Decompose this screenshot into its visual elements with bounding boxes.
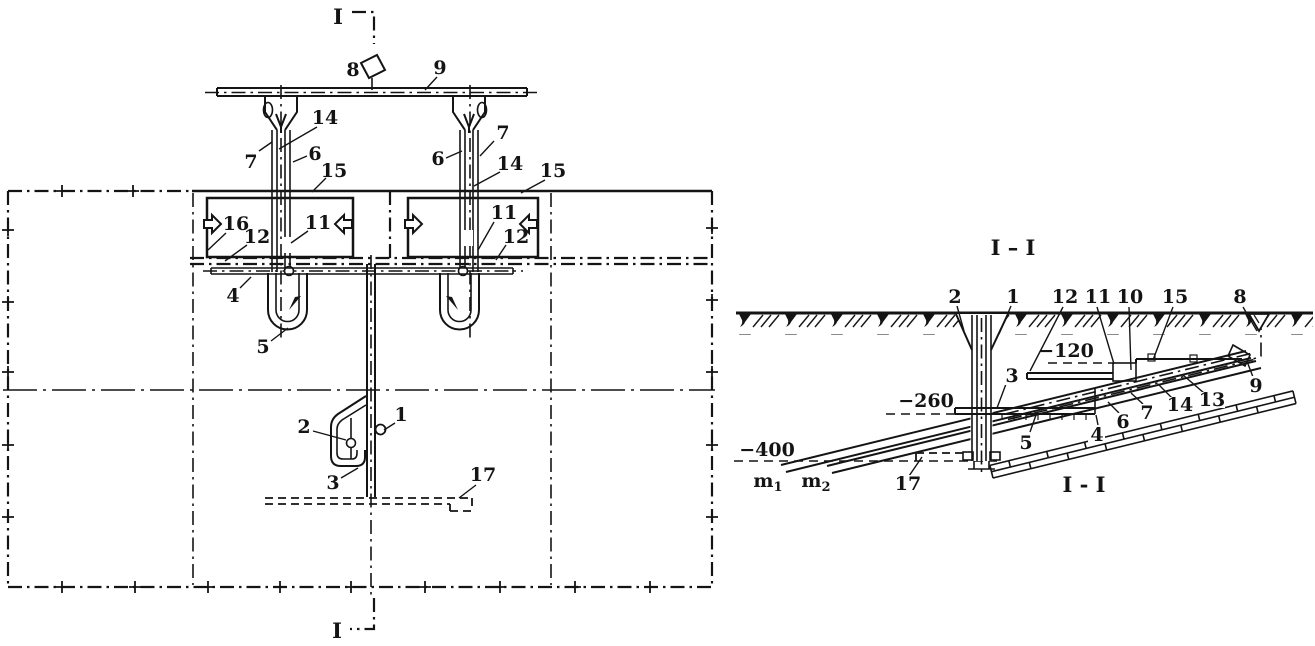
callout-7-plan: 7 — [496, 122, 509, 144]
seam-labels: m1 m2 — [753, 470, 830, 495]
callout-8-plan: 8 — [346, 59, 359, 81]
callout-2-section: 2 — [948, 286, 961, 308]
elevation-120: −120 — [1038, 340, 1094, 362]
loop-road-right — [440, 273, 479, 330]
section-caption: I - I — [1063, 472, 1106, 497]
skip-cage-right — [464, 230, 473, 246]
callout-15-plan: 15 — [540, 160, 566, 182]
plan-callouts: 8 9 14 7 6 15 6 7 14 15 16 12 11 11 12 4… — [223, 57, 566, 494]
door-arrow-icon — [335, 215, 352, 233]
section-marker-top: I — [333, 4, 374, 44]
callout-15-section: 15 — [1162, 286, 1188, 308]
technical-drawing-page: I I — [0, 0, 1315, 646]
callout-9-plan: 9 — [433, 57, 446, 79]
central-roadway — [367, 264, 386, 497]
callout-8-section: 8 — [1233, 286, 1246, 308]
ground-surface — [736, 313, 1313, 335]
plan-leaders — [208, 77, 545, 498]
callout-12-plan: 12 — [244, 226, 270, 248]
callout-4-plan: 4 — [226, 285, 239, 307]
callout-17-section: 17 — [895, 473, 921, 495]
callout-12-plan: 12 — [503, 226, 529, 248]
seam-label-m1: m1 — [753, 470, 782, 495]
elevation-400: −400 — [739, 439, 795, 461]
main-roadway-band — [190, 258, 712, 264]
loop-road-left — [268, 273, 307, 330]
callout-6-section: 6 — [1116, 411, 1129, 433]
callout-7-section: 7 — [1140, 402, 1153, 424]
section-marker-bottom: I — [332, 598, 374, 643]
callout-1-section: 1 — [1006, 286, 1019, 308]
callout-3-section: 3 — [1005, 365, 1018, 387]
callout-15-plan: 15 — [321, 160, 347, 182]
sump-dashed-section — [916, 453, 968, 461]
seam-label-m2: m2 — [801, 470, 830, 495]
callout-2-plan: 2 — [297, 416, 310, 438]
callout-6-plan: 6 — [308, 143, 321, 165]
sump-dashed-plan — [265, 498, 474, 511]
borehole-2 — [347, 439, 356, 448]
callout-10-section: 10 — [1117, 286, 1143, 308]
callout-4-section: 4 — [1090, 424, 1103, 446]
callout-9-section: 9 — [1249, 375, 1262, 397]
callout-5-section: 5 — [1019, 432, 1032, 454]
section-view: I – I — [734, 235, 1313, 497]
callout-14-plan: 14 — [497, 153, 523, 175]
section-letter-bottom: I — [332, 618, 342, 643]
fan-symbol-plan — [361, 55, 385, 90]
callout-13-section: 13 — [1199, 389, 1225, 411]
elevation-260: −260 — [898, 390, 954, 412]
mine-development-drawing: I I — [0, 0, 1315, 646]
callout-14-plan: 14 — [312, 107, 338, 129]
boundary-cross-marks — [2, 185, 718, 593]
callout-5-plan: 5 — [256, 336, 269, 358]
callout-3-plan: 3 — [326, 472, 339, 494]
callout-14-section: 14 — [1167, 394, 1193, 416]
callout-1-plan: 1 — [394, 404, 407, 426]
callout-7-plan: 7 — [244, 151, 257, 173]
callout-17-plan: 17 — [470, 464, 496, 486]
callout-12-section: 12 — [1052, 286, 1078, 308]
callout-11-plan: 11 — [305, 212, 331, 234]
ground-hatching — [736, 315, 1313, 335]
callout-11-section: 11 — [1085, 286, 1111, 308]
callout-11-plan: 11 — [491, 202, 517, 224]
plan-view: I I — [2, 4, 718, 643]
plan-centerlines — [3, 85, 715, 596]
turning-loop — [331, 396, 366, 466]
section-title: I – I — [991, 235, 1036, 260]
skip-cage-left — [284, 237, 293, 253]
field-boundary — [2, 185, 718, 593]
callout-6-plan: 6 — [431, 148, 444, 170]
section-letter-top: I — [333, 4, 343, 29]
shaft-section — [956, 314, 1008, 472]
